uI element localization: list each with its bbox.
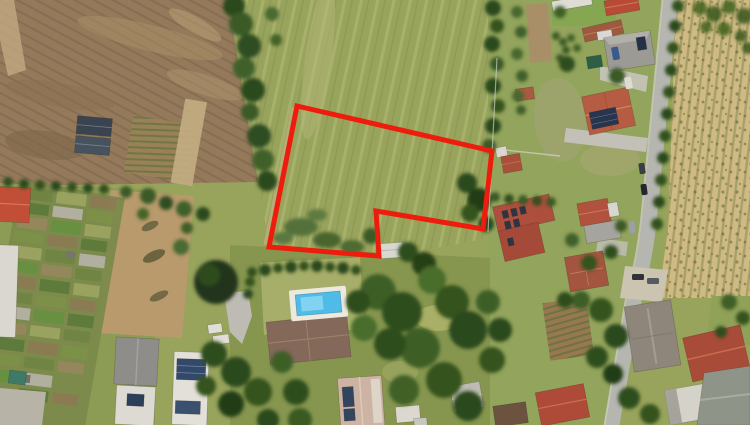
solar-array <box>344 408 356 421</box>
shed-teal <box>8 370 27 385</box>
swimming-pool <box>289 286 348 322</box>
plowed-field <box>0 0 258 186</box>
green-tarp <box>586 55 603 69</box>
trailer <box>208 323 223 334</box>
house-white-gray-left <box>112 337 159 425</box>
gravel-yard <box>0 388 46 425</box>
house-pink-solar <box>337 375 384 425</box>
solar-panel <box>127 394 145 407</box>
satellite-screenshot <box>0 0 750 425</box>
solar-panel <box>636 36 647 50</box>
solar-array <box>342 386 354 407</box>
solar-array <box>175 401 200 415</box>
building-white-left <box>0 245 19 338</box>
big-dark-tree <box>194 260 238 304</box>
shed-white-small <box>414 417 428 425</box>
garden-shed <box>65 251 76 259</box>
aerial-image <box>0 0 750 425</box>
pool-shallow <box>300 296 323 312</box>
house-large-gray <box>624 300 681 373</box>
dirt-garden-patch <box>526 3 552 62</box>
parking-area <box>620 266 668 302</box>
house-red-corner <box>501 153 523 173</box>
car-parked <box>647 278 659 284</box>
house-red-left <box>0 186 31 223</box>
car-parked <box>632 274 644 280</box>
house-gray-corner <box>697 366 750 425</box>
